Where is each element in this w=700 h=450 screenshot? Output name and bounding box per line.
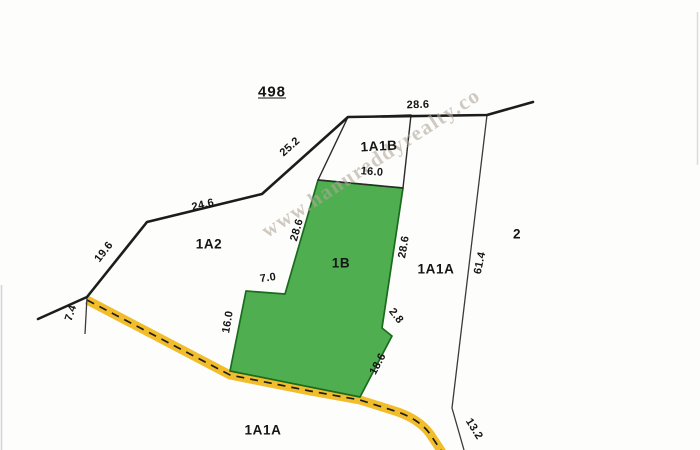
survey-plan-map: www.hanureddyrealty.co 498 25.2 24.6 19.… xyxy=(0,0,700,450)
parcel-label-1a1a-east: 1A1A xyxy=(418,262,455,277)
parcel-label-1a2: 1A2 xyxy=(196,237,223,252)
dim-label-7-0: 7.0 xyxy=(259,271,277,285)
east-boundary-line xyxy=(452,115,487,450)
parcel-label-1b: 1B xyxy=(332,256,350,271)
parcel-label-2: 2 xyxy=(513,227,521,242)
survey-number-label: 498 xyxy=(258,84,286,101)
plan-drawing xyxy=(0,0,700,450)
parcel-label-1a1a-south: 1A1A xyxy=(245,423,282,438)
dim-label-16-0-top: 16.0 xyxy=(360,165,383,179)
parcel-label-1a1b: 1A1B xyxy=(360,138,398,155)
dim-label-28-6-top: 28.6 xyxy=(406,99,429,112)
